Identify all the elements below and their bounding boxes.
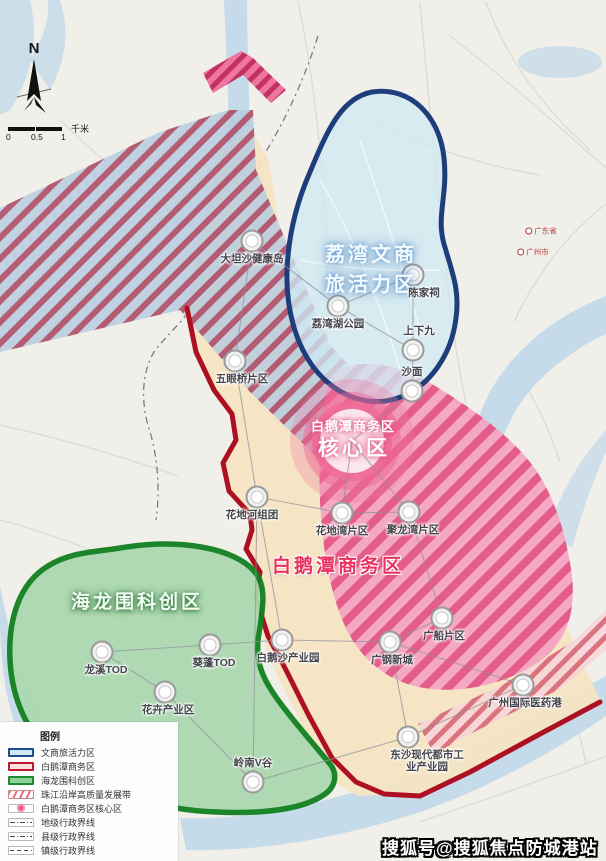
legend-swatch-dashdot [8,818,34,827]
legend-row: 镇级行政界线 [8,845,172,855]
legend-label: 珠江沿岸高质量发展带 [41,788,131,801]
legend-row: 白鹅潭商务区 [8,761,172,771]
legend-row: 白鹅潭商务区核心区 [8,803,172,813]
legend-items: 文商旅活力区白鹅潭商务区海龙围科创区珠江沿岸高质量发展带白鹅潭商务区核心区地级行… [8,747,172,855]
node-marker-inner [247,776,259,788]
node-marker-inner [276,634,288,646]
legend-row: 县级行政界线 [8,831,172,841]
compass: N [15,40,53,124]
legend-row: 文商旅活力区 [8,747,172,757]
legend-swatch-dashed [8,846,34,855]
legend-swatch-dashdot [8,832,34,841]
basemap-label: 广东省 [525,226,557,237]
node-marker-inner [336,507,348,519]
legend-swatch-core [8,804,34,813]
node-marker-inner [407,344,419,356]
legend-label: 镇级行政界线 [41,844,95,857]
node-marker-inner [246,235,258,247]
node-marker-inner [384,636,396,648]
legend-panel: 图例 文商旅活力区白鹅潭商务区海龙围科创区珠江沿岸高质量发展带白鹅潭商务区核心区… [0,722,178,861]
compass-n-label: N [15,40,53,57]
node-marker-inner [406,385,418,397]
node-marker-inner [436,612,448,624]
node-marker-inner [517,679,529,691]
city-marker-icon [525,228,532,235]
scale-bar: 千米 0 0.5 1 [5,122,105,144]
legend-swatch-hatch [8,790,34,799]
legend-swatch-area [8,762,34,771]
node-marker-inner [402,731,414,743]
node-marker-inner [96,646,108,658]
legend-title: 图例 [40,728,172,743]
watermark: 搜狐号@搜狐焦点防城港站 [382,834,598,859]
legend-swatch-area [8,748,34,757]
legend-label: 海龙围科创区 [41,774,95,787]
legend-row: 地级行政界线 [8,817,172,827]
node-marker-inner [251,491,263,503]
node-marker-inner [332,300,344,312]
legend-label: 白鹅潭商务区 [41,760,95,773]
zone-liwan-area [287,91,457,401]
legend-label: 白鹅潭商务区核心区 [41,802,122,815]
basemap-label: 广州市 [517,247,549,258]
node-marker-inner [204,639,216,651]
node-marker-inner [159,686,171,698]
legend-swatch-area [8,776,34,785]
node-marker-inner [403,506,415,518]
legend-label: 县级行政界线 [41,830,95,843]
planning-map: 荔湾文商旅活力区 白鹅潭商务区 核心区 白鹅潭商务区 海龙围科创区 大坦沙健康岛… [0,0,606,861]
scale-unit: 千米 [71,122,89,135]
city-marker-icon [517,249,524,256]
legend-label: 地级行政界线 [41,816,95,829]
scale-bar-rule [8,127,62,131]
compass-rose-icon [15,57,53,119]
node-marker-inner [407,269,419,281]
node-marker-inner [229,355,241,367]
legend-row: 海龙围科创区 [8,775,172,785]
legend-label: 文商旅活力区 [41,746,95,759]
legend-row: 珠江沿岸高质量发展带 [8,789,172,799]
